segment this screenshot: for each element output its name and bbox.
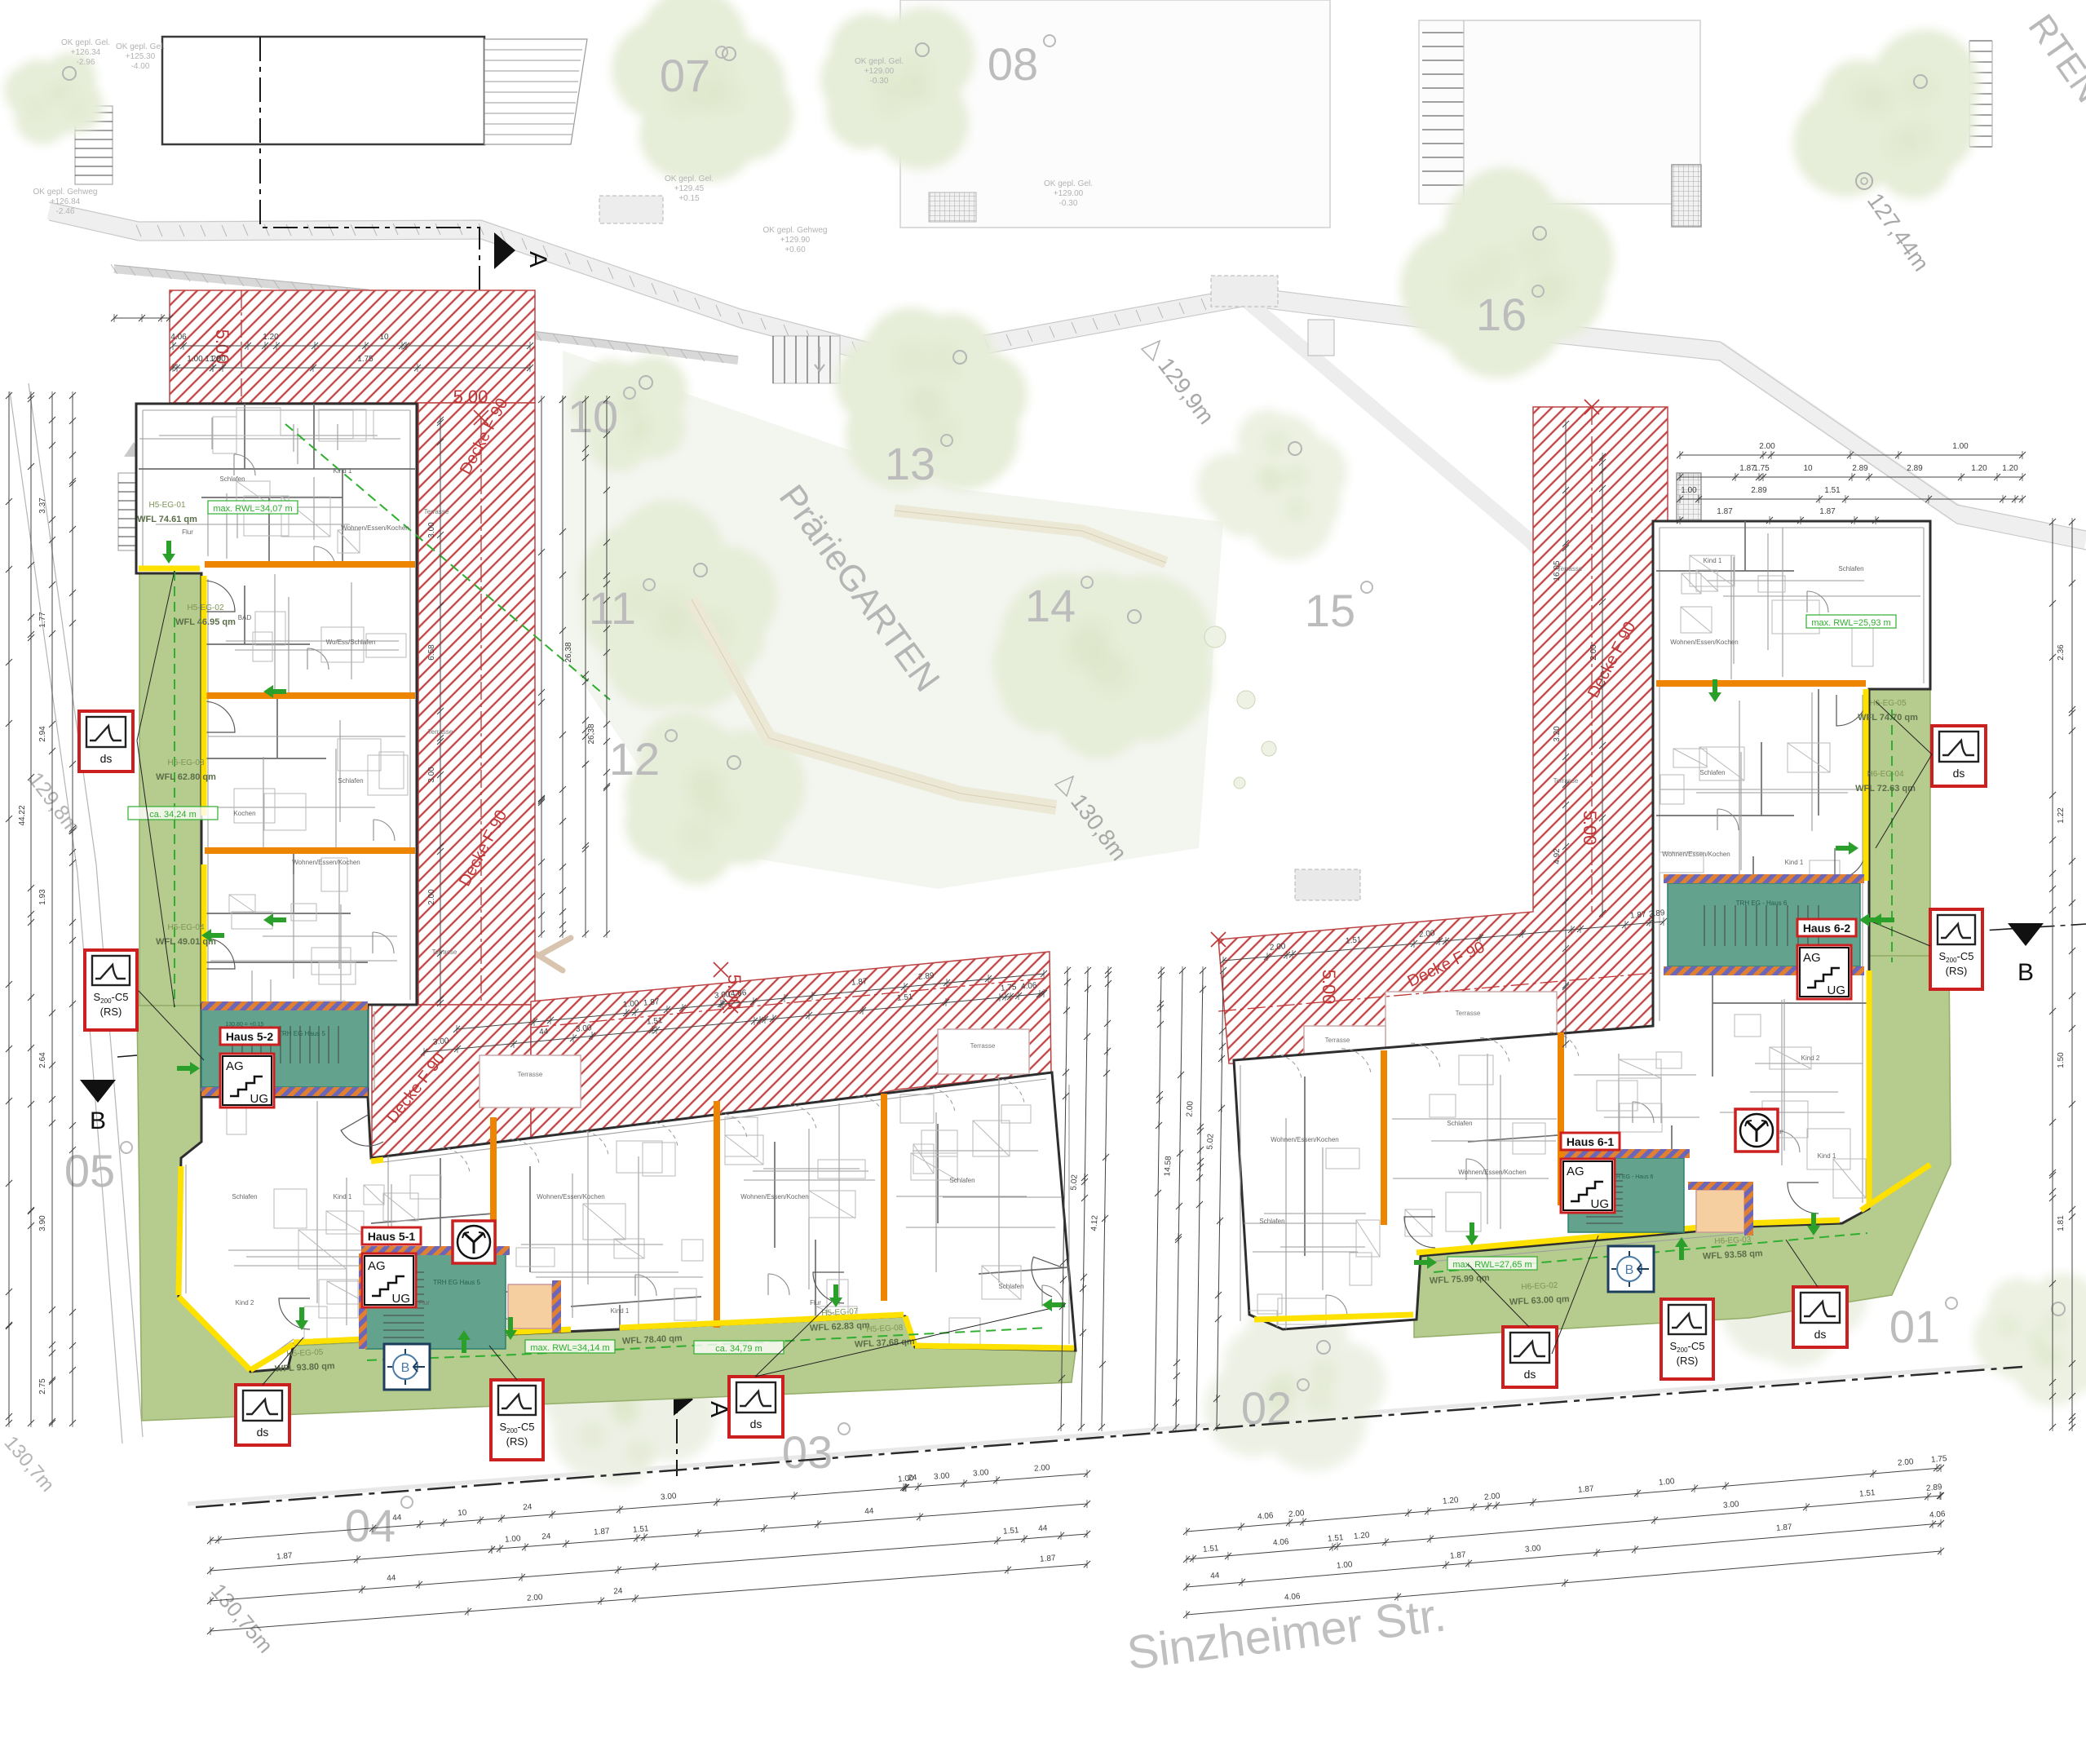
svg-text:OK gepl. Gel.: OK gepl. Gel. [61, 38, 110, 47]
svg-text:AG: AG [1803, 951, 1821, 965]
svg-text:UG: UG [250, 1092, 269, 1106]
svg-text:1.87: 1.87 [1717, 507, 1733, 516]
svg-text:Wo/Ess/Schlafen: Wo/Ess/Schlafen [326, 639, 376, 646]
svg-text:12: 12 [609, 733, 660, 785]
svg-text:2.89: 2.89 [1852, 464, 1868, 473]
svg-text:+0.15: +0.15 [678, 194, 700, 203]
svg-text:1.87: 1.87 [1630, 910, 1647, 921]
svg-text:OK gepl. Gel.: OK gepl. Gel. [116, 42, 165, 51]
svg-text:Haus 6-2: Haus 6-2 [1803, 922, 1851, 935]
svg-text:1.00: 1.00 [1337, 1560, 1354, 1571]
svg-text:3.00: 3.00 [934, 1471, 951, 1481]
svg-text:+129.45: +129.45 [674, 184, 705, 193]
svg-text:(RS): (RS) [506, 1435, 528, 1448]
svg-text:(RS): (RS) [1677, 1355, 1699, 1367]
svg-text:1.51: 1.51 [1328, 1533, 1345, 1544]
svg-text:1.00: 1.00 [1681, 486, 1697, 495]
svg-text:max. RWL=25,93 m: max. RWL=25,93 m [1811, 618, 1890, 628]
svg-text:1.87: 1.87 [1578, 1484, 1595, 1495]
svg-text:16: 16 [1476, 289, 1527, 340]
svg-text:H5-EG-02: H5-EG-02 [187, 603, 223, 612]
svg-text:B: B [1625, 1263, 1634, 1277]
svg-text:H6-EG-04: H6-EG-04 [1867, 770, 1903, 779]
svg-text:1.00: 1.00 [1952, 442, 1969, 451]
svg-text:15: 15 [1305, 585, 1355, 636]
svg-text:04: 04 [345, 1500, 396, 1551]
svg-text:1.87: 1.87 [851, 977, 868, 988]
svg-text:3.00: 3.00 [427, 767, 436, 783]
svg-text:ds: ds [1524, 1368, 1536, 1381]
svg-text:Haus 6-1: Haus 6-1 [1567, 1135, 1615, 1148]
svg-text:Kind 2: Kind 2 [1801, 1054, 1820, 1062]
svg-text:WFL 74.70 qm: WFL 74.70 qm [1858, 713, 1918, 723]
svg-text:1.00: 1.00 [505, 1534, 522, 1544]
svg-text:TRH EG - Haus 6: TRH EG - Haus 6 [1736, 900, 1788, 907]
svg-text:3.90: 3.90 [38, 1215, 47, 1231]
svg-text:1.51: 1.51 [1824, 486, 1841, 495]
svg-text:Kochen: Kochen [233, 810, 255, 817]
svg-text:Kind 2: Kind 2 [236, 1299, 254, 1306]
svg-text:44: 44 [392, 1514, 402, 1523]
svg-text:2.00: 2.00 [1898, 1457, 1915, 1468]
svg-text:2.00: 2.00 [1484, 1492, 1501, 1502]
svg-text:OK gepl. Gehweg: OK gepl. Gehweg [33, 188, 98, 197]
svg-text:OK gepl. Gel.: OK gepl. Gel. [1044, 179, 1093, 188]
svg-text:Wohnen/Essen/Kochen: Wohnen/Essen/Kochen [292, 859, 360, 866]
svg-text:5.00: 5.00 [1580, 811, 1600, 846]
svg-text:44: 44 [1038, 1524, 1048, 1534]
svg-text:TRH EG Haus 5: TRH EG Haus 5 [433, 1279, 480, 1286]
svg-text:4.06: 4.06 [1284, 1592, 1302, 1603]
svg-text:08: 08 [988, 38, 1038, 90]
svg-text:1.87: 1.87 [643, 997, 661, 1008]
svg-text:1.51: 1.51 [1003, 1526, 1020, 1536]
svg-text:(RS): (RS) [1946, 965, 1968, 977]
svg-text:3.20: 3.20 [1553, 726, 1562, 742]
svg-text:14: 14 [1025, 580, 1076, 631]
svg-text:Schlafen: Schlafen [1838, 565, 1863, 573]
svg-text:26,38: 26,38 [587, 723, 596, 744]
svg-text:(RS): (RS) [100, 1006, 122, 1018]
svg-text:3.00: 3.00 [576, 1023, 593, 1034]
svg-text:1.87: 1.87 [1776, 1523, 1793, 1533]
svg-text:5.00: 5.00 [1319, 970, 1339, 1005]
svg-text:Terrasse: Terrasse [432, 948, 457, 956]
svg-text:05: 05 [64, 1145, 115, 1196]
svg-text:Kind 1: Kind 1 [1704, 557, 1722, 564]
svg-text:13: 13 [885, 438, 935, 489]
svg-text:5.02: 5.02 [1205, 1133, 1215, 1150]
svg-text:Wohnen/Essen/Kochen: Wohnen/Essen/Kochen [537, 1193, 604, 1200]
svg-text:24: 24 [523, 1503, 533, 1513]
svg-text:-0.30: -0.30 [870, 77, 889, 86]
svg-text:10: 10 [1803, 464, 1813, 473]
svg-text:02: 02 [1241, 1382, 1292, 1434]
svg-text:Wohnen/Essen/Kochen: Wohnen/Essen/Kochen [1670, 639, 1738, 646]
svg-text:24: 24 [541, 1532, 551, 1542]
svg-text:WFL 62.80 qm: WFL 62.80 qm [156, 772, 216, 782]
svg-text:1.00: 1.00 [623, 999, 640, 1010]
svg-text:1.87: 1.87 [276, 1551, 294, 1561]
svg-text:ca. 34,24 m: ca. 34,24 m [149, 810, 196, 820]
svg-text:Terrasse: Terrasse [970, 1042, 996, 1050]
svg-text:44: 44 [1210, 1572, 1220, 1581]
svg-text:1.75: 1.75 [1001, 983, 1018, 993]
svg-text:4.06: 4.06 [731, 988, 748, 999]
svg-text:1.81: 1.81 [2057, 1215, 2066, 1231]
svg-text:1.51: 1.51 [897, 993, 914, 1003]
svg-text:B: B [2017, 959, 2034, 986]
svg-text:+0.60: +0.60 [784, 245, 806, 254]
svg-text:2.00: 2.00 [1288, 1509, 1306, 1519]
svg-text:AG: AG [226, 1059, 244, 1073]
svg-text:1.51: 1.51 [1346, 935, 1363, 946]
svg-text:16.05: 16.05 [1553, 560, 1562, 581]
svg-text:1.87: 1.87 [1819, 507, 1836, 516]
svg-text:24: 24 [908, 1474, 917, 1483]
svg-text:+126.84: +126.84 [51, 197, 81, 206]
svg-text:2.89: 2.89 [918, 971, 935, 982]
svg-text:H6-EG-05: H6-EG-05 [1869, 699, 1906, 708]
svg-text:H5-EG-04: H5-EG-04 [167, 923, 204, 932]
svg-text:3.37: 3.37 [38, 497, 47, 514]
svg-text:2.00: 2.00 [1185, 1100, 1195, 1117]
svg-text:Flur: Flur [182, 528, 193, 536]
svg-text:Schlafen: Schlafen [232, 1193, 257, 1200]
svg-text:6.58: 6.58 [427, 644, 436, 661]
svg-text:11: 11 [589, 582, 636, 634]
svg-text:ds: ds [750, 1417, 762, 1430]
svg-text:OK gepl. Gehweg: OK gepl. Gehweg [763, 226, 828, 235]
svg-text:ds: ds [1953, 767, 1965, 780]
svg-text:S200-C5: S200-C5 [1939, 950, 1974, 964]
svg-text:-2.96: -2.96 [77, 58, 95, 67]
svg-text:1.00: 1.00 [210, 355, 226, 364]
svg-text:Schlafen: Schlafen [219, 475, 245, 483]
svg-text:1.51: 1.51 [1859, 1488, 1876, 1499]
svg-text:1.20: 1.20 [1354, 1531, 1371, 1541]
svg-text:+129.00: +129.00 [864, 67, 895, 76]
svg-text:5.00: 5.00 [453, 387, 488, 407]
svg-text:2.00: 2.00 [1759, 442, 1775, 451]
svg-text:24: 24 [613, 1587, 623, 1597]
svg-text:3.00: 3.00 [1525, 1544, 1542, 1554]
svg-text:1.20: 1.20 [1443, 1496, 1460, 1506]
svg-text:UG: UG [1591, 1197, 1610, 1211]
svg-text:Wohnen/Essen/Kochen: Wohnen/Essen/Kochen [740, 1193, 808, 1200]
svg-text:5.02: 5.02 [1069, 1174, 1079, 1191]
svg-text:B: B [401, 1361, 410, 1375]
svg-text:2.89: 2.89 [1751, 486, 1767, 495]
svg-text:Terrasse: Terrasse [424, 508, 449, 515]
svg-text:2.89: 2.89 [1926, 1483, 1943, 1493]
svg-text:S200-C5: S200-C5 [94, 991, 129, 1005]
svg-text:2.00: 2.00 [1589, 644, 1598, 661]
svg-text:4.06: 4.06 [1929, 1510, 1947, 1520]
svg-text:26,38: 26,38 [564, 642, 573, 662]
svg-text:44: 44 [387, 1574, 396, 1584]
svg-text:-4.00: -4.00 [131, 62, 150, 71]
svg-text:44: 44 [539, 1027, 550, 1037]
svg-text:2.36: 2.36 [2057, 644, 2066, 661]
svg-text:S200-C5: S200-C5 [1670, 1340, 1705, 1354]
svg-text:2.94: 2.94 [38, 726, 47, 742]
svg-text:2.89: 2.89 [1907, 464, 1923, 473]
svg-text:4.12: 4.12 [1089, 1214, 1099, 1231]
svg-text:Schlafen: Schlafen [1447, 1120, 1472, 1127]
svg-text:Kind 1: Kind 1 [334, 467, 352, 475]
svg-text:1.22: 1.22 [2057, 807, 2066, 824]
svg-text:max. RWL=34,14 m: max. RWL=34,14 m [530, 1343, 609, 1353]
svg-text:H5-EG-03: H5-EG-03 [167, 758, 204, 767]
svg-text:2.00: 2.00 [427, 889, 436, 905]
svg-text:10: 10 [568, 391, 618, 442]
svg-text:Kind 1: Kind 1 [1818, 1152, 1836, 1160]
svg-text:2.89: 2.89 [1649, 909, 1666, 919]
svg-text:Wohnen/Essen/Kochen: Wohnen/Essen/Kochen [341, 524, 409, 532]
svg-text:44: 44 [864, 1507, 874, 1517]
svg-text:BAD: BAD [238, 614, 252, 621]
svg-text:ds: ds [100, 752, 113, 765]
svg-text:3.00: 3.00 [661, 1492, 678, 1501]
svg-text:2.00: 2.00 [1419, 929, 1436, 939]
svg-text:Kind 1: Kind 1 [1785, 859, 1804, 866]
svg-text:Flur: Flur [810, 1299, 821, 1306]
svg-text:WFL 46.95 qm: WFL 46.95 qm [175, 617, 236, 627]
svg-text:B: B [90, 1107, 106, 1134]
svg-text:2.00: 2.00 [1034, 1463, 1051, 1473]
svg-text:Wohnen/Essen/Kochen: Wohnen/Essen/Kochen [1662, 851, 1730, 858]
svg-text:+125.30: +125.30 [126, 52, 156, 61]
svg-text:+129.00: +129.00 [1054, 189, 1084, 198]
svg-text:max. RWL=34,07 m: max. RWL=34,07 m [213, 504, 292, 514]
svg-text:3.00: 3.00 [427, 522, 436, 538]
svg-text:1.00: 1.00 [1659, 1477, 1676, 1488]
svg-text:+126.34: +126.34 [71, 48, 101, 57]
svg-text:3.00: 3.00 [714, 990, 731, 1001]
svg-text:UG: UG [1827, 984, 1846, 997]
svg-text:Terrasse: Terrasse [1456, 1010, 1481, 1017]
svg-text:WFL 74.61 qm: WFL 74.61 qm [137, 515, 197, 524]
svg-text:1.75: 1.75 [1931, 1454, 1948, 1465]
svg-text:WFL 72.63 qm: WFL 72.63 qm [1855, 784, 1916, 794]
svg-text:Schlafen: Schlafen [338, 777, 363, 785]
svg-text:1.20: 1.20 [2002, 464, 2018, 473]
svg-text:10: 10 [457, 1509, 467, 1519]
svg-text:2.00: 2.00 [1270, 942, 1287, 953]
svg-text:Schlafen: Schlafen [998, 1283, 1023, 1290]
svg-text:1.51: 1.51 [647, 1016, 664, 1027]
svg-text:44.22: 44.22 [18, 805, 27, 825]
svg-text:AG: AG [1567, 1165, 1584, 1178]
svg-text:ca. 34,79 m: ca. 34,79 m [715, 1344, 762, 1354]
svg-text:1.75: 1.75 [1753, 464, 1770, 473]
svg-text:S200-C5: S200-C5 [500, 1421, 535, 1435]
svg-text:AG: AG [368, 1259, 386, 1273]
svg-text:Wohnen/Essen/Kochen: Wohnen/Essen/Kochen [1271, 1136, 1338, 1143]
svg-text:1.93: 1.93 [38, 889, 47, 905]
svg-text:Flur: Flur [418, 1299, 430, 1306]
svg-text:Terrasse: Terrasse [1325, 1037, 1350, 1044]
svg-text:1.51: 1.51 [633, 1524, 650, 1534]
svg-text:01: 01 [1889, 1301, 1940, 1352]
svg-text:Haus 5-1: Haus 5-1 [368, 1230, 416, 1243]
svg-text:3.00: 3.00 [973, 1468, 990, 1478]
svg-text:1.87: 1.87 [1040, 1554, 1057, 1563]
svg-text:Kind 1: Kind 1 [334, 1193, 352, 1200]
svg-text:OK gepl. Gel.: OK gepl. Gel. [855, 57, 904, 66]
svg-text:2.75: 2.75 [38, 1378, 47, 1395]
svg-text:1.87: 1.87 [1450, 1550, 1467, 1561]
svg-text:max. RWL=27,65 m: max. RWL=27,65 m [1452, 1260, 1531, 1270]
svg-text:UG: UG [392, 1292, 411, 1306]
svg-text:Wohnen/Essen/Kochen: Wohnen/Essen/Kochen [1458, 1169, 1526, 1176]
svg-text:1.75: 1.75 [357, 355, 373, 364]
svg-text:-0.30: -0.30 [1059, 199, 1078, 208]
svg-text:1.20: 1.20 [263, 333, 279, 342]
svg-text:Schlafen: Schlafen [1259, 1218, 1284, 1225]
svg-text:4.06: 4.06 [1273, 1537, 1290, 1548]
svg-text:Schlafen: Schlafen [1699, 769, 1725, 776]
svg-text:TRH EG Haus 5: TRH EG Haus 5 [278, 1030, 325, 1037]
svg-text:3.00: 3.00 [433, 1037, 450, 1047]
svg-text:-2.46: -2.46 [56, 207, 75, 216]
svg-text:1.51: 1.51 [1203, 1544, 1220, 1554]
svg-text:1.50: 1.50 [2057, 1052, 2066, 1068]
svg-text:03: 03 [782, 1426, 833, 1478]
svg-text:3.00: 3.00 [1723, 1500, 1740, 1510]
svg-text:2.00: 2.00 [527, 1593, 544, 1603]
svg-text:1.20: 1.20 [1971, 464, 1987, 473]
svg-text:OK gepl. Gel.: OK gepl. Gel. [665, 175, 714, 183]
svg-text:ds: ds [257, 1426, 269, 1439]
svg-text:14.58: 14.58 [1163, 1156, 1173, 1177]
svg-text:1.77: 1.77 [38, 612, 47, 628]
svg-text:1.87: 1.87 [594, 1527, 611, 1536]
svg-text:+129.90: +129.90 [780, 236, 811, 245]
svg-text:4.92: 4.92 [1553, 848, 1562, 864]
svg-text:07: 07 [660, 50, 710, 101]
svg-text:Schlafen: Schlafen [949, 1177, 974, 1184]
svg-text:Kind 1: Kind 1 [611, 1307, 630, 1315]
svg-text:A: A [524, 251, 551, 267]
svg-text:2.64: 2.64 [38, 1052, 47, 1068]
svg-text:4.06: 4.06 [170, 333, 187, 342]
svg-text:4.06: 4.06 [1257, 1511, 1275, 1522]
svg-text:4.06: 4.06 [1021, 981, 1038, 992]
svg-text:Terrasse: Terrasse [518, 1071, 543, 1078]
svg-text:10: 10 [379, 333, 389, 342]
svg-text:H5-EG-01: H5-EG-01 [148, 501, 185, 510]
svg-text:ds: ds [1814, 1328, 1827, 1341]
svg-text:Haus 5-2: Haus 5-2 [226, 1030, 274, 1043]
svg-text:1.00: 1.00 [187, 355, 203, 364]
